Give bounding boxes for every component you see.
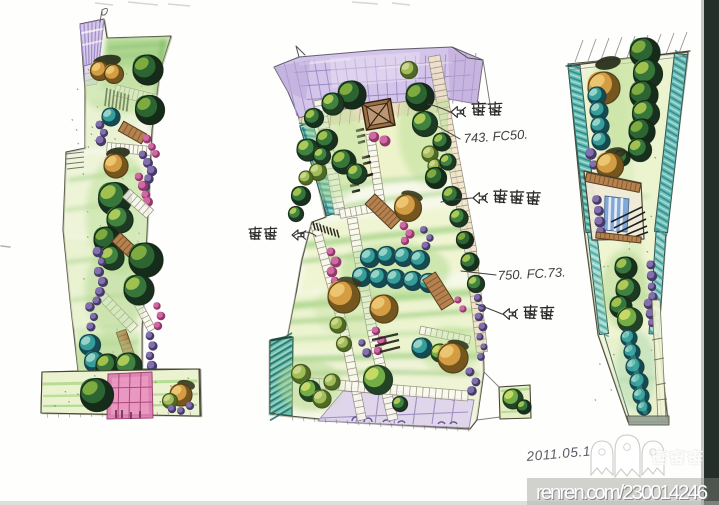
svg-text:renren.com/230014246: renren.com/230014246	[536, 481, 708, 504]
